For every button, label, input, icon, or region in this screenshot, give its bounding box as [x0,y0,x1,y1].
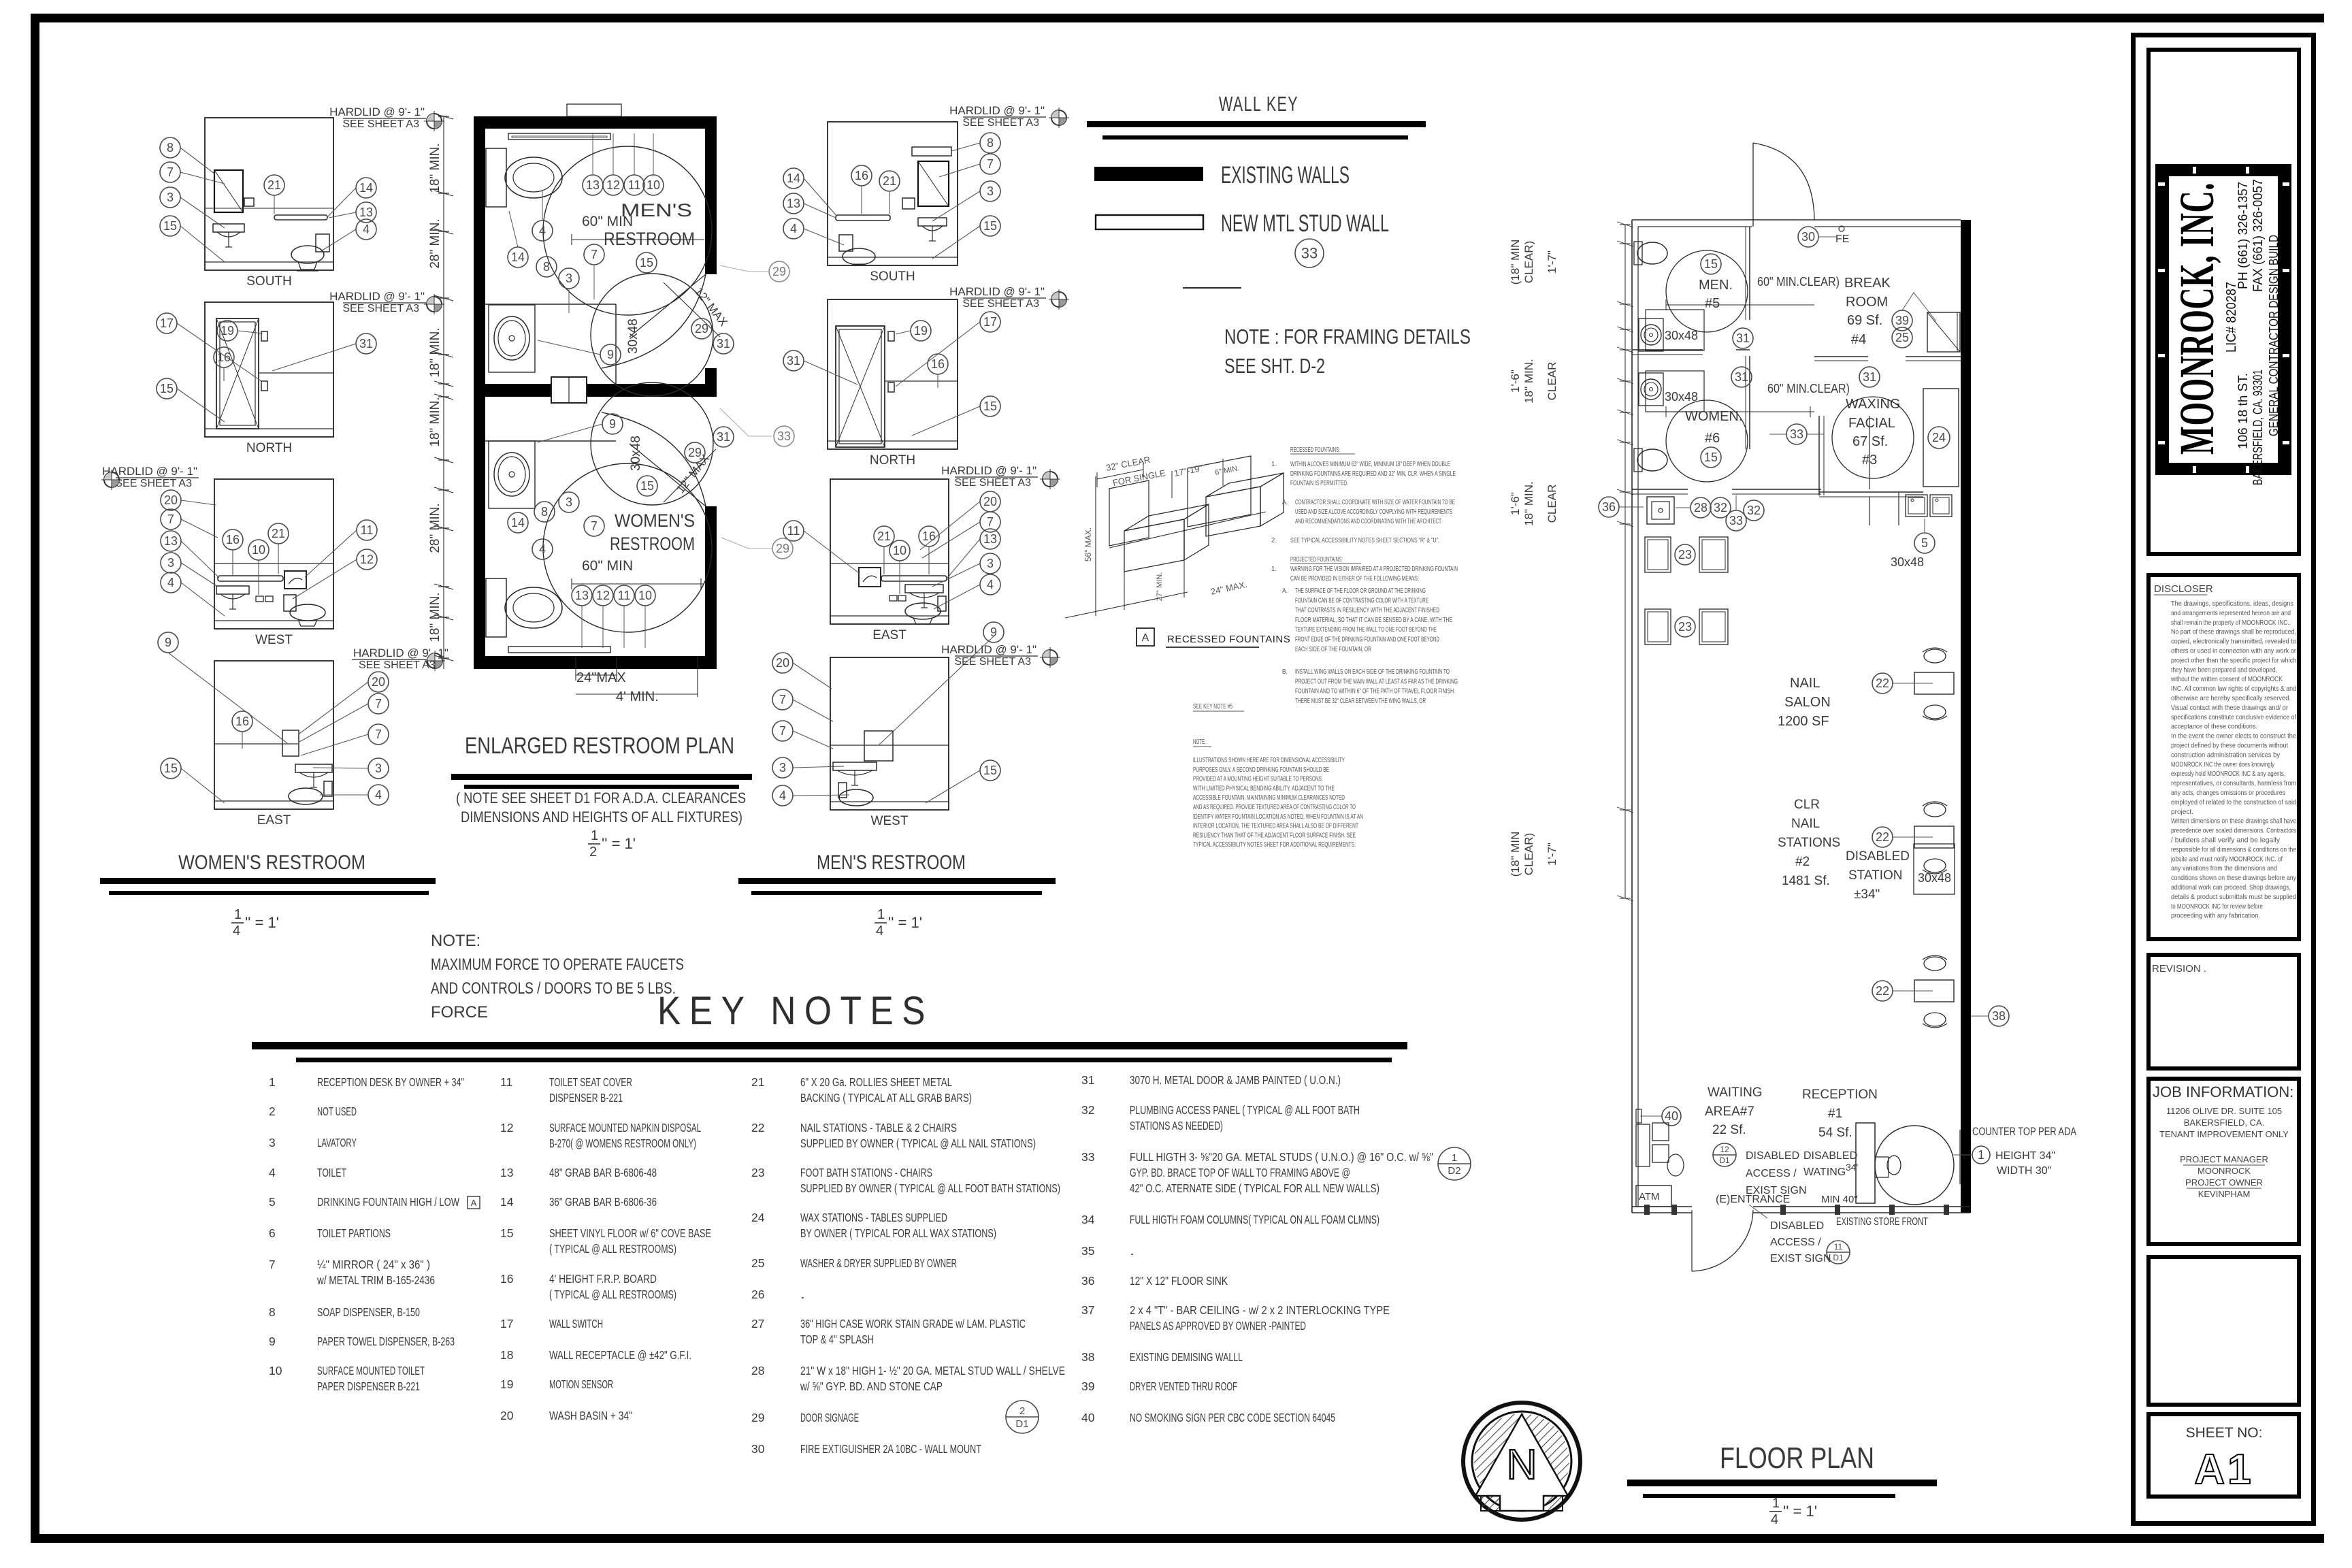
svg-text:15: 15 [983,764,997,777]
svg-text:31: 31 [1736,331,1750,345]
svg-text:WAX STATIONS - TABLES SUPPLIED: WAX STATIONS - TABLES SUPPLIED [800,1211,947,1224]
svg-text:A1: A1 [2194,1446,2253,1493]
svg-text:B.: B. [1282,668,1288,676]
svg-text:BY OWNER ( TYPICAL FOR ALL WAX: BY OWNER ( TYPICAL FOR ALL WAX STATIONS) [800,1226,996,1240]
svg-text:DRYER VENTED THRU ROOF: DRYER VENTED THRU ROOF [1130,1379,1237,1393]
svg-text:FLOOR PLAN: FLOOR PLAN [1720,1441,1874,1475]
svg-text:1: 1 [1452,1152,1457,1164]
svg-text:18" MIN.: 18" MIN. [428,143,442,193]
svg-text:DISABLED: DISABLED [1803,1150,1857,1162]
svg-text:24"MAX: 24"MAX [576,670,626,685]
svg-text:11: 11 [618,589,631,602]
svg-text:42" O.C. ATERNATE SIDE ( TYPIC: 42" O.C. ATERNATE SIDE ( TYPICAL FOR ALL… [1130,1181,1379,1195]
svg-text:10: 10 [269,1364,282,1377]
svg-text:NAIL STATIONS - TABLE & 2 CHAI: NAIL STATIONS - TABLE & 2 CHAIRS [800,1121,957,1134]
svg-text:FLOOR MATERIAL, SO THAT IT CAN: FLOOR MATERIAL, SO THAT IT CAN BE SENSED… [1295,617,1452,624]
svg-text:without the written consent of: without the written consent of MOONROCK [2170,675,2283,683]
svg-text:NAIL: NAIL [1790,676,1820,691]
svg-text:(E)ENTRANCE: (E)ENTRANCE [1716,1194,1790,1205]
svg-text:54 Sf.: 54 Sf. [1818,1126,1852,1140]
svg-text:DISPENSER B-221: DISPENSER B-221 [549,1091,623,1105]
svg-text:FE: FE [1835,233,1849,245]
svg-text:MOTION SENSOR: MOTION SENSOR [549,1377,613,1391]
svg-text:HEIGHT 34": HEIGHT 34" [1995,1150,2055,1162]
svg-text:67 Sf.: 67 Sf. [1852,434,1888,449]
svg-text:7: 7 [779,693,786,706]
svg-text:RECESSED FOUNTAINS: RECESSED FOUNTAINS [1167,634,1290,645]
svg-text:25: 25 [1895,331,1909,344]
svg-text:( TYPICAL @ ALL RESTROOMS): ( TYPICAL @ ALL RESTROOMS) [549,1288,676,1301]
svg-text:A: A [471,1198,477,1208]
svg-text:jobsite and must notify MOONRO: jobsite and must notify MOONROCK INC. of [2170,855,2283,863]
svg-text:WIDTH 30": WIDTH 30" [1997,1165,2051,1177]
svg-text:4: 4 [790,222,797,235]
svg-text:60" MIN.CLEAR): 60" MIN.CLEAR) [1757,275,1840,289]
svg-text:acceptance of these conditions: acceptance of these conditions. [2171,723,2257,731]
svg-text:39: 39 [1081,1379,1094,1393]
svg-text:EAST: EAST [872,628,906,642]
svg-text:PANELS AS APPROVED BY OWNER -P: PANELS AS APPROVED BY OWNER -PAINTED [1130,1319,1306,1333]
svg-text:20: 20 [500,1409,514,1422]
svg-text:1'-6": 1'-6" [1509,492,1522,515]
svg-text:DISABLED: DISABLED [1846,849,1910,864]
svg-text:project.: project. [2171,808,2193,816]
svg-text:ATM: ATM [1639,1191,1660,1203]
svg-text:10: 10 [647,178,660,192]
svg-text:w/ ⅝" GYP. BD. AND STONE CAP: w/ ⅝" GYP. BD. AND STONE CAP [800,1379,943,1393]
svg-text:13: 13 [500,1166,513,1179]
svg-text:1: 1 [1772,1496,1780,1511]
svg-text:HARDLID @ 9'- 1": HARDLID @ 9'- 1" [102,465,197,478]
svg-text:12" X 12" FLOOR SINK: 12" X 12" FLOOR SINK [1130,1274,1228,1288]
svg-text:any variations from the dimens: any variations from the dimensions and [2171,864,2277,872]
svg-text:19: 19 [220,324,234,338]
svg-text:NAIL: NAIL [1791,817,1820,831]
svg-text:1481 Sf.: 1481 Sf. [1782,874,1830,888]
svg-text:EACH SIDE OF THE FOUNTAIN, OR: EACH SIDE OF THE FOUNTAIN, OR [1295,646,1371,653]
svg-text:STATIONS AS NEEDED): STATIONS AS NEEDED) [1130,1119,1223,1132]
svg-text:SOUTH: SOUTH [870,269,915,284]
svg-text:13: 13 [586,178,600,192]
svg-text:11: 11 [628,178,641,192]
svg-text:WALL SWITCH: WALL SWITCH [549,1317,603,1330]
svg-text:24: 24 [751,1211,765,1224]
svg-text:WEST: WEST [255,633,293,647]
svg-text:7: 7 [591,248,598,261]
svg-text:BAKERSFIELD, CA. 93301: BAKERSFIELD, CA. 93301 [2251,370,2266,485]
svg-text:AND AS REQUIRED. PROVIDE TEXTU: AND AS REQUIRED. PROVIDE TEXTURED AREA O… [1193,804,1356,811]
svg-text:10: 10 [252,543,265,557]
svg-text:WATING: WATING [1803,1166,1846,1178]
svg-text:TOILET: TOILET [317,1166,346,1179]
svg-text:5: 5 [1921,536,1928,550]
svg-text:#1: #1 [1828,1107,1842,1121]
svg-text:2: 2 [269,1105,276,1118]
svg-text:additional work can proceed. S: additional work can proceed. Shop drawin… [2171,883,2291,892]
svg-text:17: 17 [500,1317,513,1330]
svg-text:RECESSED FOUNTAINS:: RECESSED FOUNTAINS: [1290,446,1340,454]
svg-text:6" X 20 Ga. ROLLIES SHEET META: 6" X 20 Ga. ROLLIES SHEET METAL [800,1075,952,1089]
svg-text:15: 15 [160,382,174,395]
svg-text:to MOONROCK INC for review bef: to MOONROCK INC for review before [2171,902,2263,911]
svg-text:HARDLID @ 9'- 1": HARDLID @ 9'- 1" [941,643,1036,656]
svg-text:SEE SHEET A3: SEE SHEET A3 [115,478,192,489]
svg-text:INSTALL WING WALLS ON EACH SID: INSTALL WING WALLS ON EACH SIDE OF THE D… [1295,668,1450,676]
svg-text:3: 3 [987,557,994,570]
svg-text:PLUMBING ACCESS PANEL ( TYPICA: PLUMBING ACCESS PANEL ( TYPICAL @ ALL FO… [1130,1103,1360,1117]
svg-text:FORCE: FORCE [431,1003,488,1022]
svg-text:SEE SHT. D-2: SEE SHT. D-2 [1224,354,1325,378]
svg-text:29: 29 [751,1411,764,1424]
svg-text:33: 33 [1081,1150,1094,1164]
svg-text:15: 15 [1704,451,1718,464]
svg-text:36" HIGH CASE WORK STAIN GRADE: 36" HIGH CASE WORK STAIN GRADE w/ LAM. P… [800,1317,1026,1330]
svg-text:20: 20 [372,675,385,689]
svg-text:GYP. BD. BRACE TOP OF WALL TO: GYP. BD. BRACE TOP OF WALL TO FRAMING AB… [1130,1166,1350,1179]
svg-text:8: 8 [541,505,548,519]
svg-text:ACCESS /: ACCESS / [1746,1168,1797,1179]
svg-text:D2: D2 [1448,1165,1460,1177]
svg-text:SHEET VINYL FLOOR w/ 6" COVE B: SHEET VINYL FLOOR w/ 6" COVE BASE [549,1226,711,1240]
svg-text:THERE MUST BE 32" CLEAR BETWEE: THERE MUST BE 32" CLEAR BETWEEN THE WING… [1295,698,1426,705]
svg-text:12: 12 [606,178,620,192]
svg-text:STATION: STATION [1848,868,1903,883]
svg-text:11206 OLIVE DR. SUITE 105: 11206 OLIVE DR. SUITE 105 [2166,1106,2282,1116]
svg-text:16: 16 [226,533,240,546]
svg-text:RESILIENCY THAN THAT OF THE AD: RESILIENCY THAN THAT OF THE ADJACENT FLO… [1193,832,1356,839]
svg-text:( NOTE SEE SHEET D1 FOR A.D.A.: ( NOTE SEE SHEET D1 FOR A.D.A. CLEARANCE… [456,789,746,806]
svg-text:CLEAR): CLEAR) [1522,241,1535,283]
svg-text:LIC# 820287: LIC# 820287 [2224,282,2239,353]
svg-text:EXIST SIGN: EXIST SIGN [1770,1253,1831,1264]
svg-text:MAXIMUM FORCE TO OPERATE FAUCE: MAXIMUM FORCE TO OPERATE FAUCETS [431,955,684,974]
svg-text:29: 29 [695,322,708,336]
svg-text:WARNING FOR THE VISION IMPAIRE: WARNING FOR THE VISION IMPAIRED AT A PRO… [1290,566,1458,573]
svg-text:1: 1 [1978,1148,1984,1162]
svg-text:DISCLOSER: DISCLOSER [2154,583,2213,595]
svg-text:FOUNTAIN IS PERMITTED.: FOUNTAIN IS PERMITTED. [1290,480,1348,487]
svg-text:#6: #6 [1705,431,1720,446]
svg-text:3: 3 [167,556,174,570]
svg-text:LAVATORY: LAVATORY [317,1136,357,1149]
svg-text:MOONROCK: MOONROCK [2198,1166,2251,1176]
svg-text:4: 4 [269,1166,276,1179]
svg-text:2.: 2. [1271,537,1277,544]
svg-text:36" GRAB BAR B-6806-36: 36" GRAB BAR B-6806-36 [549,1195,657,1209]
svg-text:SALON: SALON [1784,695,1831,710]
svg-text:22: 22 [751,1121,764,1134]
svg-text:construction administration se: construction administration services by [2171,751,2281,759]
svg-text:21: 21 [751,1075,764,1089]
svg-text:Visual contact with these draw: Visual contact with these drawings and/ … [2171,704,2288,712]
svg-text:31: 31 [1863,370,1876,384]
svg-text:31: 31 [359,337,373,350]
svg-text:18: 18 [500,1348,513,1362]
svg-text:employed of related to the con: employed of related to the construction … [2171,798,2296,806]
svg-text:'' = 1': '' = 1' [245,914,279,931]
svg-text:#5: #5 [1705,296,1720,311]
svg-text:NOT USED: NOT USED [317,1105,357,1118]
svg-text:ILLUSTRATIONS SHOWN HERE ARE F: ILLUSTRATIONS SHOWN HERE ARE FOR DIMENSI… [1193,757,1345,764]
svg-text:30x48: 30x48 [1891,555,1924,569]
svg-text:DOOR SIGNAGE: DOOR SIGNAGE [800,1411,859,1424]
svg-text:SEE SHEET A3: SEE SHEET A3 [359,659,436,671]
svg-text:HARDLID @ 9'- 1": HARDLID @ 9'- 1" [941,464,1036,477]
svg-text:CLEAR: CLEAR [1546,362,1558,401]
svg-text:3: 3 [167,191,174,204]
svg-text:project other than the specifi: project other than the specific project … [2171,656,2296,664]
svg-text:(18" MIN: (18" MIN [1509,240,1522,285]
svg-text:7: 7 [167,165,174,179]
svg-text:WOMEN'S RESTROOM: WOMEN'S RESTROOM [178,851,365,874]
svg-text:15: 15 [640,256,653,269]
svg-text:7: 7 [167,512,174,526]
svg-text:ENLARGED RESTROOM PLAN: ENLARGED RESTROOM PLAN [465,733,734,759]
svg-text:proceeding with any fabricatio: proceeding with any fabrication. [2171,912,2260,920]
svg-text:MOONROCK, INC.: MOONROCK, INC. [2170,182,2224,455]
svg-text:1'-7": 1'-7" [1546,843,1558,866]
svg-text:3: 3 [987,184,994,198]
svg-text:33: 33 [1790,427,1803,441]
svg-text:DISABLED: DISABLED [1746,1150,1799,1162]
svg-text:15: 15 [163,219,177,233]
svg-text:28: 28 [751,1364,764,1377]
svg-text:38: 38 [1081,1350,1094,1364]
svg-text:31: 31 [717,337,730,350]
svg-text:5: 5 [269,1195,276,1209]
svg-text:WOMEN'S: WOMEN'S [615,510,695,531]
svg-text:4: 4 [987,578,994,591]
svg-text:MEN.: MEN. [1699,278,1733,293]
svg-text:20: 20 [776,656,789,670]
svg-text:1: 1 [269,1075,276,1089]
svg-text:RECEPTION DESK BY OWNER + 34": RECEPTION DESK BY OWNER + 34" [317,1075,464,1089]
svg-text:19: 19 [914,324,928,338]
svg-text:CLEAR: CLEAR [1546,485,1558,523]
svg-text:27: 27 [751,1317,764,1330]
svg-text:representatives, or consultant: representatives, or consultants, harmles… [2171,779,2296,787]
svg-text:SEE SHEET A3: SEE SHEET A3 [342,118,419,130]
svg-text:26: 26 [751,1288,764,1301]
svg-text:30x48: 30x48 [1665,329,1698,342]
svg-text:27" MIN.: 27" MIN. [1156,572,1164,601]
svg-text:±34": ±34" [1854,887,1880,902]
svg-text:HARDLID @ 9'- 1": HARDLID @ 9'- 1" [329,290,425,303]
svg-text:28: 28 [1694,501,1708,514]
svg-text:11: 11 [500,1075,512,1089]
svg-text:1: 1 [877,907,885,922]
svg-text:13: 13 [983,532,997,546]
svg-text:N: N [1507,1441,1537,1488]
svg-text:23: 23 [751,1166,764,1179]
svg-text:SOUTH: SOUTH [246,274,292,289]
svg-text:TENANT IMPROVEMENT ONLY: TENANT IMPROVEMENT ONLY [2159,1129,2289,1139]
svg-text:18" MIN.: 18" MIN. [1522,481,1535,526]
svg-text:TOILET SEAT COVER: TOILET SEAT COVER [549,1075,632,1089]
svg-text:MOONROCK INC the owner does kn: MOONROCK INC the owner does knowingly [2171,760,2275,768]
svg-text:project defined by these docum: project defined by these documents witho… [2171,742,2288,750]
svg-text:RESTROOM: RESTROOM [610,534,695,554]
svg-text:DIMENSIONS AND HEIGHTS OF ALL: DIMENSIONS AND HEIGHTS OF ALL FIXTURES) [461,808,742,826]
svg-text:TOILET PARTIONS: TOILET PARTIONS [317,1226,391,1240]
svg-text:7: 7 [591,519,598,533]
svg-text:32: 32 [1747,504,1761,517]
svg-text:8: 8 [269,1305,276,1319]
svg-text:SEE SHEET A3: SEE SHEET A3 [342,303,419,314]
svg-text:4: 4 [375,788,382,802]
svg-text:'' = 1': '' = 1' [888,914,922,931]
svg-text:CONTRACTOR SHALL COORDINATE WI: CONTRACTOR SHALL COORDINATE WITH SIZE OF… [1295,499,1455,506]
svg-text:SURFACE MOUNTED TOILET: SURFACE MOUNTED TOILET [317,1364,425,1377]
svg-text:NOTE:: NOTE: [431,932,480,950]
svg-text:conditions shown on these draw: conditions shown on these drawings befor… [2171,874,2297,882]
svg-text:17: 17 [160,316,174,330]
svg-text:19: 19 [500,1377,513,1391]
svg-text:RECEPTION: RECEPTION [1802,1088,1878,1102]
svg-text:Written dimensions on these dr: Written dimensions on these drawings sha… [2171,817,2296,826]
svg-text:WASHER & DRYER SUPPLIED BY OWN: WASHER & DRYER SUPPLIED BY OWNER [800,1256,957,1270]
svg-text:1'-6": 1'-6" [1509,370,1522,393]
svg-text:2: 2 [589,845,597,860]
svg-text:18" MIN.: 18" MIN. [428,327,442,377]
svg-text:responsible for all dimensions: responsible for all dimensions & conditi… [2171,845,2296,853]
svg-text:ROOM: ROOM [1846,295,1888,310]
svg-text:22: 22 [1876,676,1889,690]
svg-text:60" MIN: 60" MIN [582,214,633,229]
svg-text:BAKERSFIELD, CA.: BAKERSFIELD, CA. [2184,1117,2264,1128]
svg-text:20: 20 [983,495,997,508]
svg-text:w/ METAL TRIM B-165-2436: w/ METAL TRIM B-165-2436 [316,1273,435,1287]
svg-text:7: 7 [779,724,786,738]
svg-text:FAX (661) 326-0057: FAX (661) 326-0057 [2251,179,2266,292]
svg-text:9: 9 [165,636,171,649]
svg-text:SEE SHEET A3: SEE SHEET A3 [962,117,1039,129]
svg-text:4' HEIGHT F.R.P. BOARD: 4' HEIGHT F.R.P. BOARD [549,1272,657,1286]
svg-text:4: 4 [539,224,546,238]
svg-text:HARDLID @ 9'- 1": HARDLID @ 9'- 1" [949,285,1045,298]
svg-text:WEST: WEST [871,814,909,828]
svg-text:WAXING: WAXING [1846,397,1900,412]
svg-text:16: 16 [855,169,868,182]
svg-text:3: 3 [779,761,786,774]
svg-text:1: 1 [591,828,598,843]
svg-text:SHEET NO:: SHEET NO: [2186,1425,2263,1441]
svg-text:4: 4 [167,576,174,589]
svg-text:4: 4 [779,789,786,802]
svg-text:15: 15 [640,479,654,493]
svg-text:3: 3 [566,272,572,285]
svg-text:33: 33 [1729,514,1743,527]
svg-text:AND CONTROLS / DOORS TO BE 5: AND CONTROLS / DOORS TO BE 5 LBS. [431,979,676,998]
svg-text:No part of these drawings shal: No part of these drawings shall be repro… [2171,628,2296,636]
svg-text:13: 13 [787,197,800,210]
svg-text:CLEAR): CLEAR) [1522,833,1535,875]
svg-text:SEE TYPICAL ACCESSIBILITY NOTE: SEE TYPICAL ACCESSIBILITY NOTES SHEET SE… [1290,537,1439,544]
svg-text:6: 6 [269,1226,276,1240]
svg-text:69 Sf.: 69 Sf. [1847,313,1882,328]
svg-text:16: 16 [500,1272,513,1286]
svg-text:21: 21 [267,178,281,192]
svg-text:60" MIN: 60" MIN [582,558,633,574]
svg-text:8: 8 [543,260,550,274]
svg-text:FOUNTAIN AND TO WITHIN 6" OF T: FOUNTAIN AND TO WITHIN 6" OF THE PATH OF… [1295,688,1455,696]
svg-text:25: 25 [751,1256,764,1270]
svg-text:PURPOSES ONLY. A SECOND DRINK: PURPOSES ONLY. A SECOND DRINKING FOUNTAI… [1193,766,1329,774]
svg-text:14: 14 [787,171,800,185]
svg-text:15: 15 [983,399,997,413]
svg-text:7: 7 [987,157,994,171]
svg-text:12: 12 [596,589,610,602]
svg-text:7: 7 [987,515,994,529]
svg-text:21: 21 [272,527,285,540]
svg-text:15: 15 [164,762,178,775]
svg-text:11: 11 [1834,1242,1843,1252]
svg-text:4: 4 [539,542,546,556]
svg-text:SEE SHEET A3: SEE SHEET A3 [954,656,1031,668]
svg-text:DRINKING FOUNTAIN HIGH / LOW: DRINKING FOUNTAIN HIGH / LOW [317,1195,459,1209]
svg-text:21" W x 18" HIGH 1- ½" 20 GA.: 21" W x 18" HIGH 1- ½" 20 GA. METAL STUD… [800,1364,1065,1377]
svg-text:(18" MIN: (18" MIN [1509,832,1522,877]
svg-text:In the event the owner elects: In the event the owner elects to constru… [2171,732,2296,740]
svg-text:A.: A. [1282,499,1288,506]
svg-text:28" MIN.: 28" MIN. [428,503,442,553]
svg-text:12: 12 [360,553,374,566]
svg-text:4: 4 [1771,1512,1778,1527]
svg-text:9: 9 [609,417,616,431]
svg-text:STATIONS: STATIONS [1778,836,1840,850]
svg-text:4' MIN.: 4' MIN. [616,689,659,704]
svg-text:NOTE:: NOTE: [1193,738,1206,746]
svg-text:1'-7": 1'-7" [1546,250,1558,274]
svg-text:18" MIN.: 18" MIN. [428,592,442,642]
svg-text:106 18 th ST.: 106 18 th ST. [2236,373,2251,449]
svg-text:COUNTER TOP PER ADA: COUNTER TOP PER ADA [1972,1125,2076,1138]
svg-text:29: 29 [776,542,789,555]
svg-text:30x48: 30x48 [1665,390,1698,404]
svg-text:16: 16 [217,350,231,364]
svg-text:JOB INFORMATION:: JOB INFORMATION: [2153,1083,2293,1100]
svg-text:#2: #2 [1795,855,1810,869]
svg-text:3070 H. METAL DOOR & JAMB PAIN: 3070 H. METAL DOOR & JAMB PAINTED ( U.O.… [1130,1073,1341,1087]
svg-text:3: 3 [566,495,572,509]
svg-text:others or used in connection w: others or used in connection with any wo… [2171,647,2296,655]
svg-text:14: 14 [511,516,525,529]
svg-text:TEXTURE EXTENDING FROM THE WAL: TEXTURE EXTENDING FROM THE WALL TO ONE F… [1295,626,1437,634]
svg-text:REVISION .: REVISION . [2152,963,2206,975]
svg-text:12: 12 [1720,1145,1729,1154]
svg-text:RESTROOM: RESTROOM [604,229,695,249]
svg-text:7: 7 [375,697,382,710]
svg-text:expressly hold MOONROCK INC &: expressly hold MOONROCK INC & any agents… [2171,770,2285,778]
svg-text:11: 11 [787,524,800,538]
svg-text:details & product submittals m: details & product submittals must be sup… [2171,893,2296,901]
svg-text:23: 23 [1678,548,1692,561]
svg-text:WALL RECEPTACLE @ ±42" G.F.I.: WALL RECEPTACLE @ ±42" G.F.I. [549,1348,691,1362]
svg-text:34: 34 [1081,1213,1095,1226]
svg-text:B-270( @ WOMENS RESTROOM ONLY): B-270( @ WOMENS RESTROOM ONLY) [549,1137,696,1150]
svg-text:15: 15 [500,1226,513,1240]
svg-text:12: 12 [500,1121,513,1134]
svg-text:AREA#7: AREA#7 [1705,1105,1754,1119]
svg-text:39: 39 [1895,314,1909,327]
svg-text:23: 23 [1678,620,1692,634]
svg-text:FULL HIGTH FOAM COLUMNS( TYPIC: FULL HIGTH FOAM COLUMNS( TYPICAL ON ALL … [1130,1213,1379,1226]
svg-text:1200 SF: 1200 SF [1778,714,1829,729]
svg-text:SUPPLIED BY OWNER ( TYPICAL @: SUPPLIED BY OWNER ( TYPICAL @ ALL FOOT B… [800,1181,1060,1195]
svg-text:37: 37 [1081,1303,1094,1317]
svg-text:PAPER TOWEL DISPENSER, B-263: PAPER TOWEL DISPENSER, B-263 [317,1335,455,1348]
svg-text:30x48: 30x48 [629,436,643,471]
